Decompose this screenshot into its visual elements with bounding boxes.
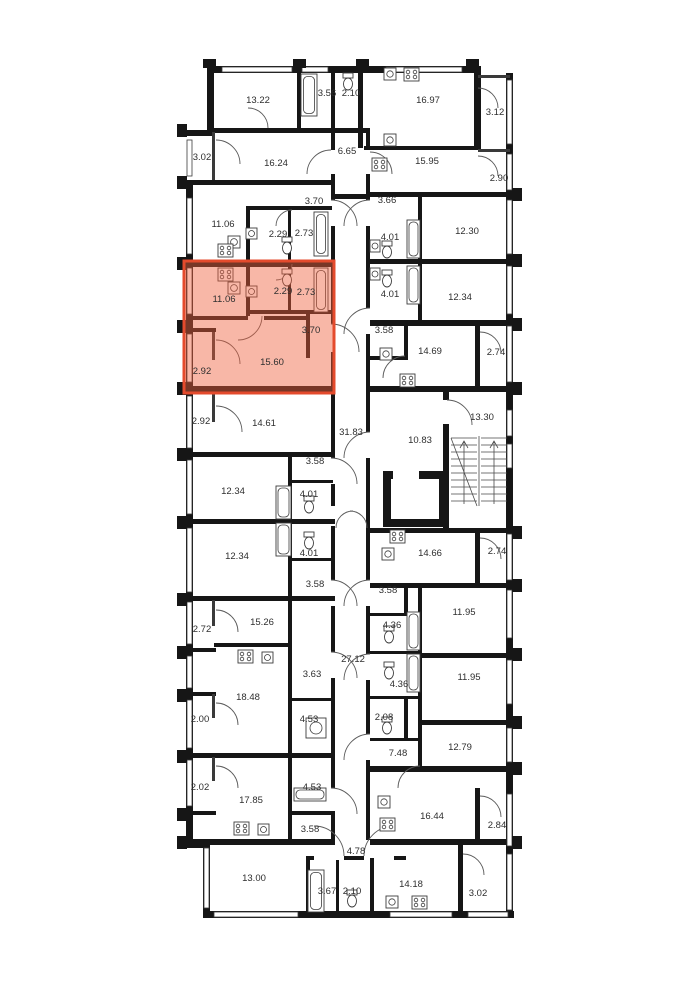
room-area-label: 4.78 (347, 846, 366, 857)
room-area-label-highlighted: 3.70 (302, 325, 321, 336)
room-area-label: 15.26 (250, 617, 274, 628)
room-area-label: 3.58 (306, 456, 325, 467)
room-area-label: 3.66 (378, 195, 397, 206)
room-area-label: 4.01 (381, 232, 400, 243)
staircase (451, 436, 507, 506)
room-area-label: 2.72 (193, 624, 212, 635)
room-area-label: 2.10 (342, 88, 361, 99)
room-area-label: 2.73 (295, 228, 314, 239)
room-area-label: 16.97 (416, 95, 440, 106)
room-area-label: 12.30 (455, 226, 479, 237)
room-area-label: 3.56 (318, 88, 337, 99)
room-area-label: 13.22 (246, 95, 270, 106)
room-area-label-highlighted: 2.92 (193, 366, 212, 377)
room-area-label: 7.48 (389, 748, 408, 759)
room-area-label-highlighted: 15.60 (260, 357, 284, 368)
room-area-label: 18.48 (236, 692, 260, 703)
room-area-label: 15.95 (415, 156, 439, 167)
room-area-label: 13.30 (470, 412, 494, 423)
room-area-label: 12.79 (448, 742, 472, 753)
room-area-label: 6.65 (338, 146, 357, 157)
room-area-label: 17.85 (239, 795, 263, 806)
room-area-label: 16.44 (420, 811, 444, 822)
room-area-label: 12.34 (221, 486, 245, 497)
room-area-label: 13.00 (242, 873, 266, 884)
room-area-label: 2.84 (488, 820, 507, 831)
room-area-label-highlighted: 2.73 (297, 287, 316, 298)
room-area-label: 2.10 (343, 886, 362, 897)
room-area-label: 14.69 (418, 346, 442, 357)
room-area-label: 3.58 (306, 579, 325, 590)
room-area-label: 4.53 (300, 714, 319, 725)
room-area-label: 16.24 (264, 158, 288, 169)
room-area-label: 2.08 (375, 712, 394, 723)
room-area-label: 3.02 (193, 152, 212, 163)
floor-plan-page: 13.223.562.1016.973.123.0216.246.6515.95… (0, 0, 700, 990)
room-area-label: 3.58 (301, 824, 320, 835)
room-area-label: 3.58 (375, 325, 394, 336)
room-area-label: 2.02 (191, 782, 210, 793)
room-area-label-highlighted: 2.29 (274, 286, 293, 297)
room-area-label: 4.01 (381, 289, 400, 300)
room-area-label: 12.34 (448, 292, 472, 303)
room-area-label-highlighted: 11.06 (212, 294, 235, 305)
room-area-label: 3.63 (303, 669, 322, 680)
room-area-label: 4.01 (300, 489, 319, 500)
room-area-label: 11.95 (457, 672, 480, 683)
elevator-shaft (383, 471, 447, 527)
room-area-label: 27.12 (341, 654, 365, 665)
room-area-label: 3.02 (469, 888, 488, 899)
floor-plan: 13.223.562.1016.973.123.0216.246.6515.95… (0, 0, 700, 990)
room-area-label: 4.36 (383, 620, 402, 631)
room-area-label: 3.12 (486, 107, 505, 118)
room-area-label: 12.34 (225, 551, 249, 562)
room-area-label: 4.53 (303, 782, 322, 793)
room-area-label: 10.83 (408, 435, 432, 446)
room-area-label: 3.58 (379, 585, 398, 596)
room-area-label: 2.74 (487, 347, 506, 358)
room-area-label: 31.83 (339, 427, 363, 438)
room-area-label: 3.67 (318, 886, 337, 897)
room-area-label: 2.00 (191, 714, 210, 725)
room-area-label: 11.95 (452, 607, 475, 618)
room-area-label: 4.01 (300, 548, 319, 559)
room-area-label: 11.06 (211, 219, 234, 230)
room-area-label: 4.36 (390, 679, 409, 690)
room-area-label: 2.92 (192, 416, 211, 427)
room-area-label: 14.61 (252, 418, 276, 429)
room-area-label: 2.74 (488, 546, 507, 557)
room-area-label: 2.90 (490, 173, 509, 184)
room-area-label: 3.70 (305, 196, 324, 207)
room-area-label: 14.18 (399, 879, 423, 890)
room-area-label: 2.29 (269, 229, 288, 240)
room-area-label: 14.66 (418, 548, 442, 559)
